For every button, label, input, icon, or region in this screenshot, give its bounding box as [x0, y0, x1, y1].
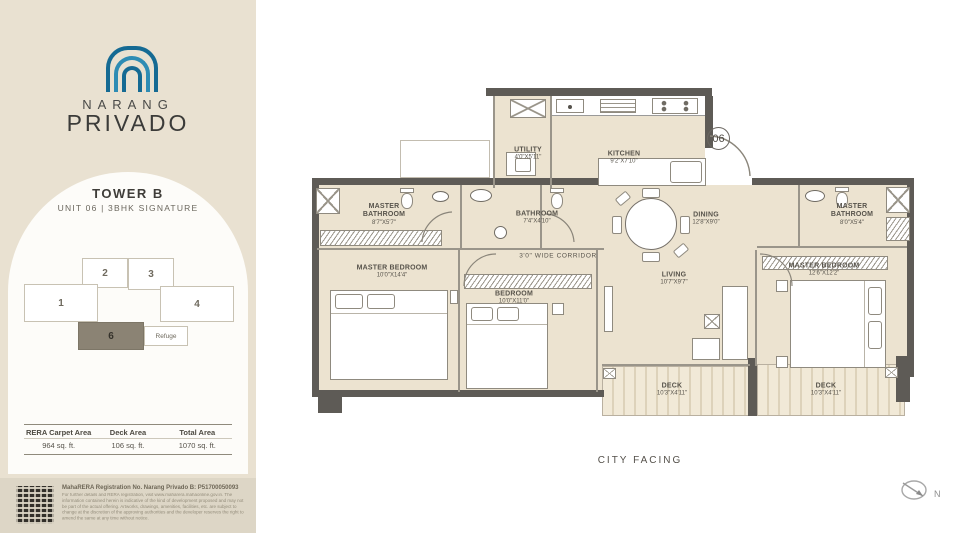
room-label-master-bathroom-left: MASTER BATHROOM 8'7"X5'7"	[353, 203, 415, 227]
city-facing-label: CITY FACING	[560, 455, 720, 466]
room-dims: 10'3"X4'11"	[657, 391, 687, 398]
bed-left-masterbed-icon	[330, 290, 448, 380]
pillow	[335, 294, 363, 309]
partition-living-deck	[602, 364, 750, 366]
sidebar: NARANG PRIVADO TOWER B UNIT 06 | 3BHK SI…	[0, 0, 256, 533]
keyplan-unit-1-label: 1	[58, 298, 64, 309]
shaft-right-bottom-icon	[886, 217, 910, 241]
disclaimer-text: For further details and RERA registratio…	[62, 493, 248, 522]
ledge-outline	[400, 140, 490, 178]
shaft-left-icon	[316, 188, 340, 214]
room-dims: 10'0"X11'0"	[495, 299, 533, 306]
room-dims: 10'3"X4'11"	[811, 391, 841, 398]
room-dims: 7'4"X4'10"	[516, 219, 558, 226]
wall-left-outer	[312, 185, 319, 397]
partition-rightbath-bottom	[757, 246, 907, 248]
unit-info-card: TOWER B UNIT 06 | 3BHK SIGNATURE 2 3 1 4…	[8, 172, 248, 474]
partition-bedroom-living	[596, 250, 598, 392]
side-table	[552, 303, 564, 315]
pillow	[868, 321, 882, 349]
blanket-line	[331, 313, 447, 314]
compass-north-label: N	[934, 489, 941, 499]
kitchen-hob-icon	[652, 98, 698, 114]
wall-bottom-left-step	[318, 397, 342, 413]
blanket-line	[467, 324, 547, 325]
room-label-bedroom: BEDROOM 10'0"X11'0"	[495, 290, 533, 305]
wc-icon-bathroom	[551, 193, 563, 209]
blanket-line	[864, 281, 865, 367]
dining-chair	[642, 252, 660, 262]
room-name: DECK	[811, 382, 841, 390]
wall-right-wing-top	[752, 178, 914, 185]
room-label-dining: DINING 12'8"X9'0"	[692, 211, 719, 226]
room-name: DECK	[657, 382, 687, 390]
area-table-value-deck: 106 sq. ft.	[93, 438, 162, 454]
room-label-living: LIVING 10'7"X9'7"	[660, 271, 687, 286]
room-dims: 8'7"X5'7"	[353, 220, 415, 227]
brand-name-bottom: PRIVADO	[0, 110, 256, 137]
area-table-header-carpet: RERA Carpet Area	[24, 425, 93, 438]
area-table-header-total: Total Area	[163, 425, 232, 438]
unit-number-badge: 06	[707, 127, 730, 150]
key-plan: 2 3 1 4 6 Refuge	[20, 252, 236, 387]
wall-deck-right-end	[896, 356, 910, 402]
qr-code	[16, 486, 54, 524]
room-name: BEDROOM	[495, 290, 533, 298]
wall-deck-divider	[748, 358, 757, 416]
sink-drain-dot	[568, 105, 572, 109]
deck-left-corner-icon	[603, 368, 616, 379]
sink-icon-left-masterbath	[432, 191, 449, 202]
room-label-utility: UTILITY 4'0"X5'11"	[514, 146, 542, 161]
utility-platform-icon	[510, 99, 546, 118]
room-name: KITCHEN	[608, 150, 641, 158]
bed-right-masterbed-icon	[790, 280, 886, 368]
room-dims: 9'2"X7'10"	[608, 159, 641, 166]
area-table-value-total: 1070 sq. ft.	[163, 438, 232, 454]
kitchen-drainboard-icon	[600, 99, 636, 113]
dining-chair	[642, 188, 660, 198]
sink-icon-lobby	[470, 189, 492, 202]
compass-icon: N	[898, 477, 948, 507]
partition-masterbed-bedroom	[458, 250, 460, 392]
kitchen-fridge-icon	[670, 161, 702, 183]
room-dims: 10'7"X9'7"	[660, 280, 687, 287]
keyplan-unit-2-label: 2	[102, 268, 108, 279]
unit-subtitle: UNIT 06 | 3BHK SIGNATURE	[8, 203, 248, 213]
room-label-master-bedroom-right: MASTER BEDROOM 12'6"X12'2"	[789, 262, 860, 277]
room-label-master-bedroom-left: MASTER BEDROOM 10'0"X14'4"	[357, 264, 428, 279]
room-label-bathroom: BATHROOM 7'4"X4'10"	[516, 210, 558, 225]
pillow	[471, 307, 493, 321]
bed-bedroom-icon	[466, 303, 548, 389]
room-label-deck-left: DECK 10'3"X4'11"	[657, 382, 687, 397]
dining-chair	[612, 216, 622, 234]
keyplan-unit-6-label: 6	[108, 331, 114, 342]
floor-plan: 06 UTILITY 4'0"X5'11" KITCHEN 9'2"X7'10"…	[300, 88, 920, 433]
keyplan-refuge: Refuge	[144, 326, 188, 346]
keyplan-unit-1: 1	[24, 284, 98, 322]
sofa-chaise-icon	[692, 338, 720, 360]
pillow	[497, 307, 519, 321]
deck-right-corner-icon	[885, 367, 898, 378]
corridor-label: 3'0" WIDE CORRIDOR	[519, 253, 597, 260]
room-dims: 12'8"X9'0"	[692, 220, 719, 227]
pillow	[367, 294, 395, 309]
room-name: LIVING	[660, 271, 687, 279]
keyplan-unit-3-label: 3	[148, 269, 154, 280]
area-table: RERA Carpet Area Deck Area Total Area 96…	[24, 424, 232, 455]
partition-bath-corridor	[317, 248, 604, 250]
shaft-right-top-icon	[886, 187, 910, 213]
round-basin-icon-corridor	[494, 226, 507, 239]
room-name: MASTER BEDROOM	[789, 262, 860, 270]
keyplan-unit-4-label: 4	[194, 299, 200, 310]
wall-top-kitchen	[486, 88, 712, 96]
room-name: MASTER BATHROOM	[353, 203, 415, 220]
partition-living-masterbed-right	[755, 250, 757, 366]
side-table	[450, 290, 458, 304]
room-name: BATHROOM	[516, 210, 558, 218]
room-dims: 12'6"X12'2"	[789, 271, 860, 278]
coffee-table-icon	[704, 314, 720, 329]
room-dims: 10'0"X14'4"	[357, 273, 428, 280]
compass-needle-icon	[898, 477, 932, 505]
dining-chair	[680, 216, 690, 234]
wall-left-wing-top	[312, 178, 608, 185]
door-arc-icon	[462, 252, 498, 288]
room-dims: 8'0"X5'4"	[821, 220, 883, 227]
keyplan-unit-4: 4	[160, 286, 234, 322]
keyplan-unit-6-highlighted: 6	[78, 322, 144, 350]
sofa-icon	[722, 286, 748, 360]
side-table	[776, 356, 788, 368]
sink-icon-right-masterbath	[805, 190, 825, 202]
partition-rightbath-left	[798, 185, 800, 247]
room-name: UTILITY	[514, 146, 542, 154]
room-label-kitchen: KITCHEN 9'2"X7'10"	[608, 150, 641, 165]
logo-arch-inner	[122, 66, 142, 92]
partition-utility-left	[493, 96, 495, 188]
door-arc-icon	[420, 210, 454, 244]
dining-table-icon	[625, 198, 677, 250]
rera-registration-text: MahaRERA Registration No. Narang Privado…	[62, 485, 248, 491]
keyplan-refuge-label: Refuge	[156, 333, 177, 340]
tower-title: TOWER B	[8, 186, 248, 201]
area-table-value-carpet: 964 sq. ft.	[24, 438, 93, 454]
tv-unit-icon	[604, 286, 613, 332]
partition-masterbath-lobby	[460, 185, 462, 250]
room-label-deck-right: DECK 10'3"X4'11"	[811, 382, 841, 397]
room-name: DINING	[692, 211, 719, 219]
wall-right-outer	[907, 185, 914, 377]
room-name: MASTER BATHROOM	[821, 203, 883, 220]
kitchen-sink-icon	[556, 99, 584, 113]
room-name: MASTER BEDROOM	[357, 264, 428, 272]
room-label-master-bathroom-right: MASTER BATHROOM 8'0"X5'4"	[821, 203, 883, 227]
room-dims: 4'0"X5'11"	[514, 155, 542, 162]
brochure-page: NARANG PRIVADO TOWER B UNIT 06 | 3BHK SI…	[0, 0, 957, 533]
area-table-header-deck: Deck Area	[93, 425, 162, 438]
pillow	[868, 287, 882, 315]
sidebar-footer: MahaRERA Registration No. Narang Privado…	[0, 478, 256, 533]
